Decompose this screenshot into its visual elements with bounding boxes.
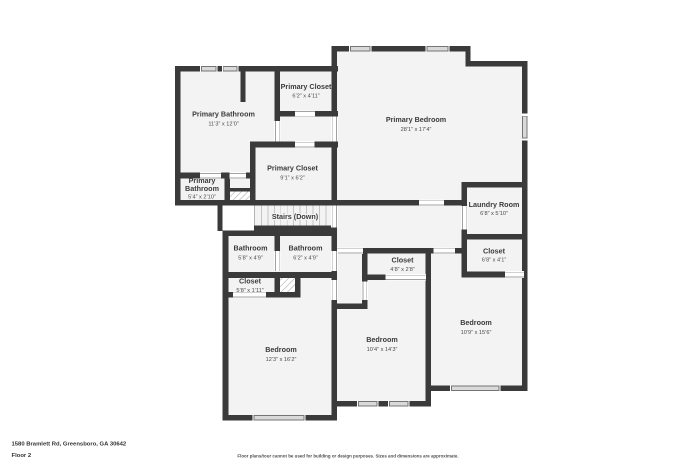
svg-text:6’2” x 4’9”: 6’2” x 4’9” [293, 255, 318, 261]
svg-text:Bathroom: Bathroom [185, 184, 219, 193]
svg-text:Closet: Closet [483, 247, 506, 256]
svg-text:9’1” x 6’2”: 9’1” x 6’2” [280, 176, 305, 182]
svg-text:5’4” x 2’10”: 5’4” x 2’10” [188, 195, 216, 201]
svg-text:Laundry Room: Laundry Room [469, 200, 520, 209]
svg-text:Stairs (Down): Stairs (Down) [272, 212, 319, 221]
svg-text:12’3” x 16’2”: 12’3” x 16’2” [266, 357, 297, 363]
svg-text:1580 Bramlett Rd, Greensboro,: 1580 Bramlett Rd, Greensboro, GA 30642 [12, 442, 127, 448]
svg-text:Closet: Closet [239, 277, 262, 286]
svg-text:6’2” x 4’11”: 6’2” x 4’11” [292, 94, 319, 100]
svg-text:Primary Bedroom: Primary Bedroom [386, 115, 446, 124]
svg-text:Primary Closet: Primary Closet [281, 82, 332, 91]
svg-text:6’8” x 5’10”: 6’8” x 5’10” [480, 211, 508, 217]
svg-text:Closet: Closet [392, 256, 415, 265]
svg-text:4’8” x 2’8”: 4’8” x 2’8” [390, 267, 415, 273]
svg-text:28’1” x 17’4”: 28’1” x 17’4” [401, 127, 432, 133]
svg-text:11’3” x 12’0”: 11’3” x 12’0” [208, 122, 239, 128]
svg-text:10’9” x 15’6”: 10’9” x 15’6” [461, 330, 492, 336]
svg-text:Bedroom: Bedroom [460, 318, 492, 327]
svg-text:Primary Bathroom: Primary Bathroom [192, 110, 255, 119]
svg-text:Floor plans/tour cannot be use: Floor plans/tour cannot be used for buil… [237, 454, 458, 459]
svg-text:Bedroom: Bedroom [265, 345, 297, 354]
svg-text:5’8” x 4’9”: 5’8” x 4’9” [238, 255, 263, 261]
svg-text:Bathroom: Bathroom [234, 244, 268, 253]
svg-text:5’8” x 1’11”: 5’8” x 1’11” [236, 288, 263, 294]
svg-text:6’8” x 4’1”: 6’8” x 4’1” [482, 257, 507, 263]
svg-text:Bathroom: Bathroom [289, 244, 323, 253]
svg-text:10’4” x 14’3”: 10’4” x 14’3” [367, 347, 398, 353]
svg-text:Bedroom: Bedroom [366, 335, 398, 344]
svg-text:Floor 2: Floor 2 [12, 453, 32, 459]
svg-text:Primary Closet: Primary Closet [267, 164, 318, 173]
